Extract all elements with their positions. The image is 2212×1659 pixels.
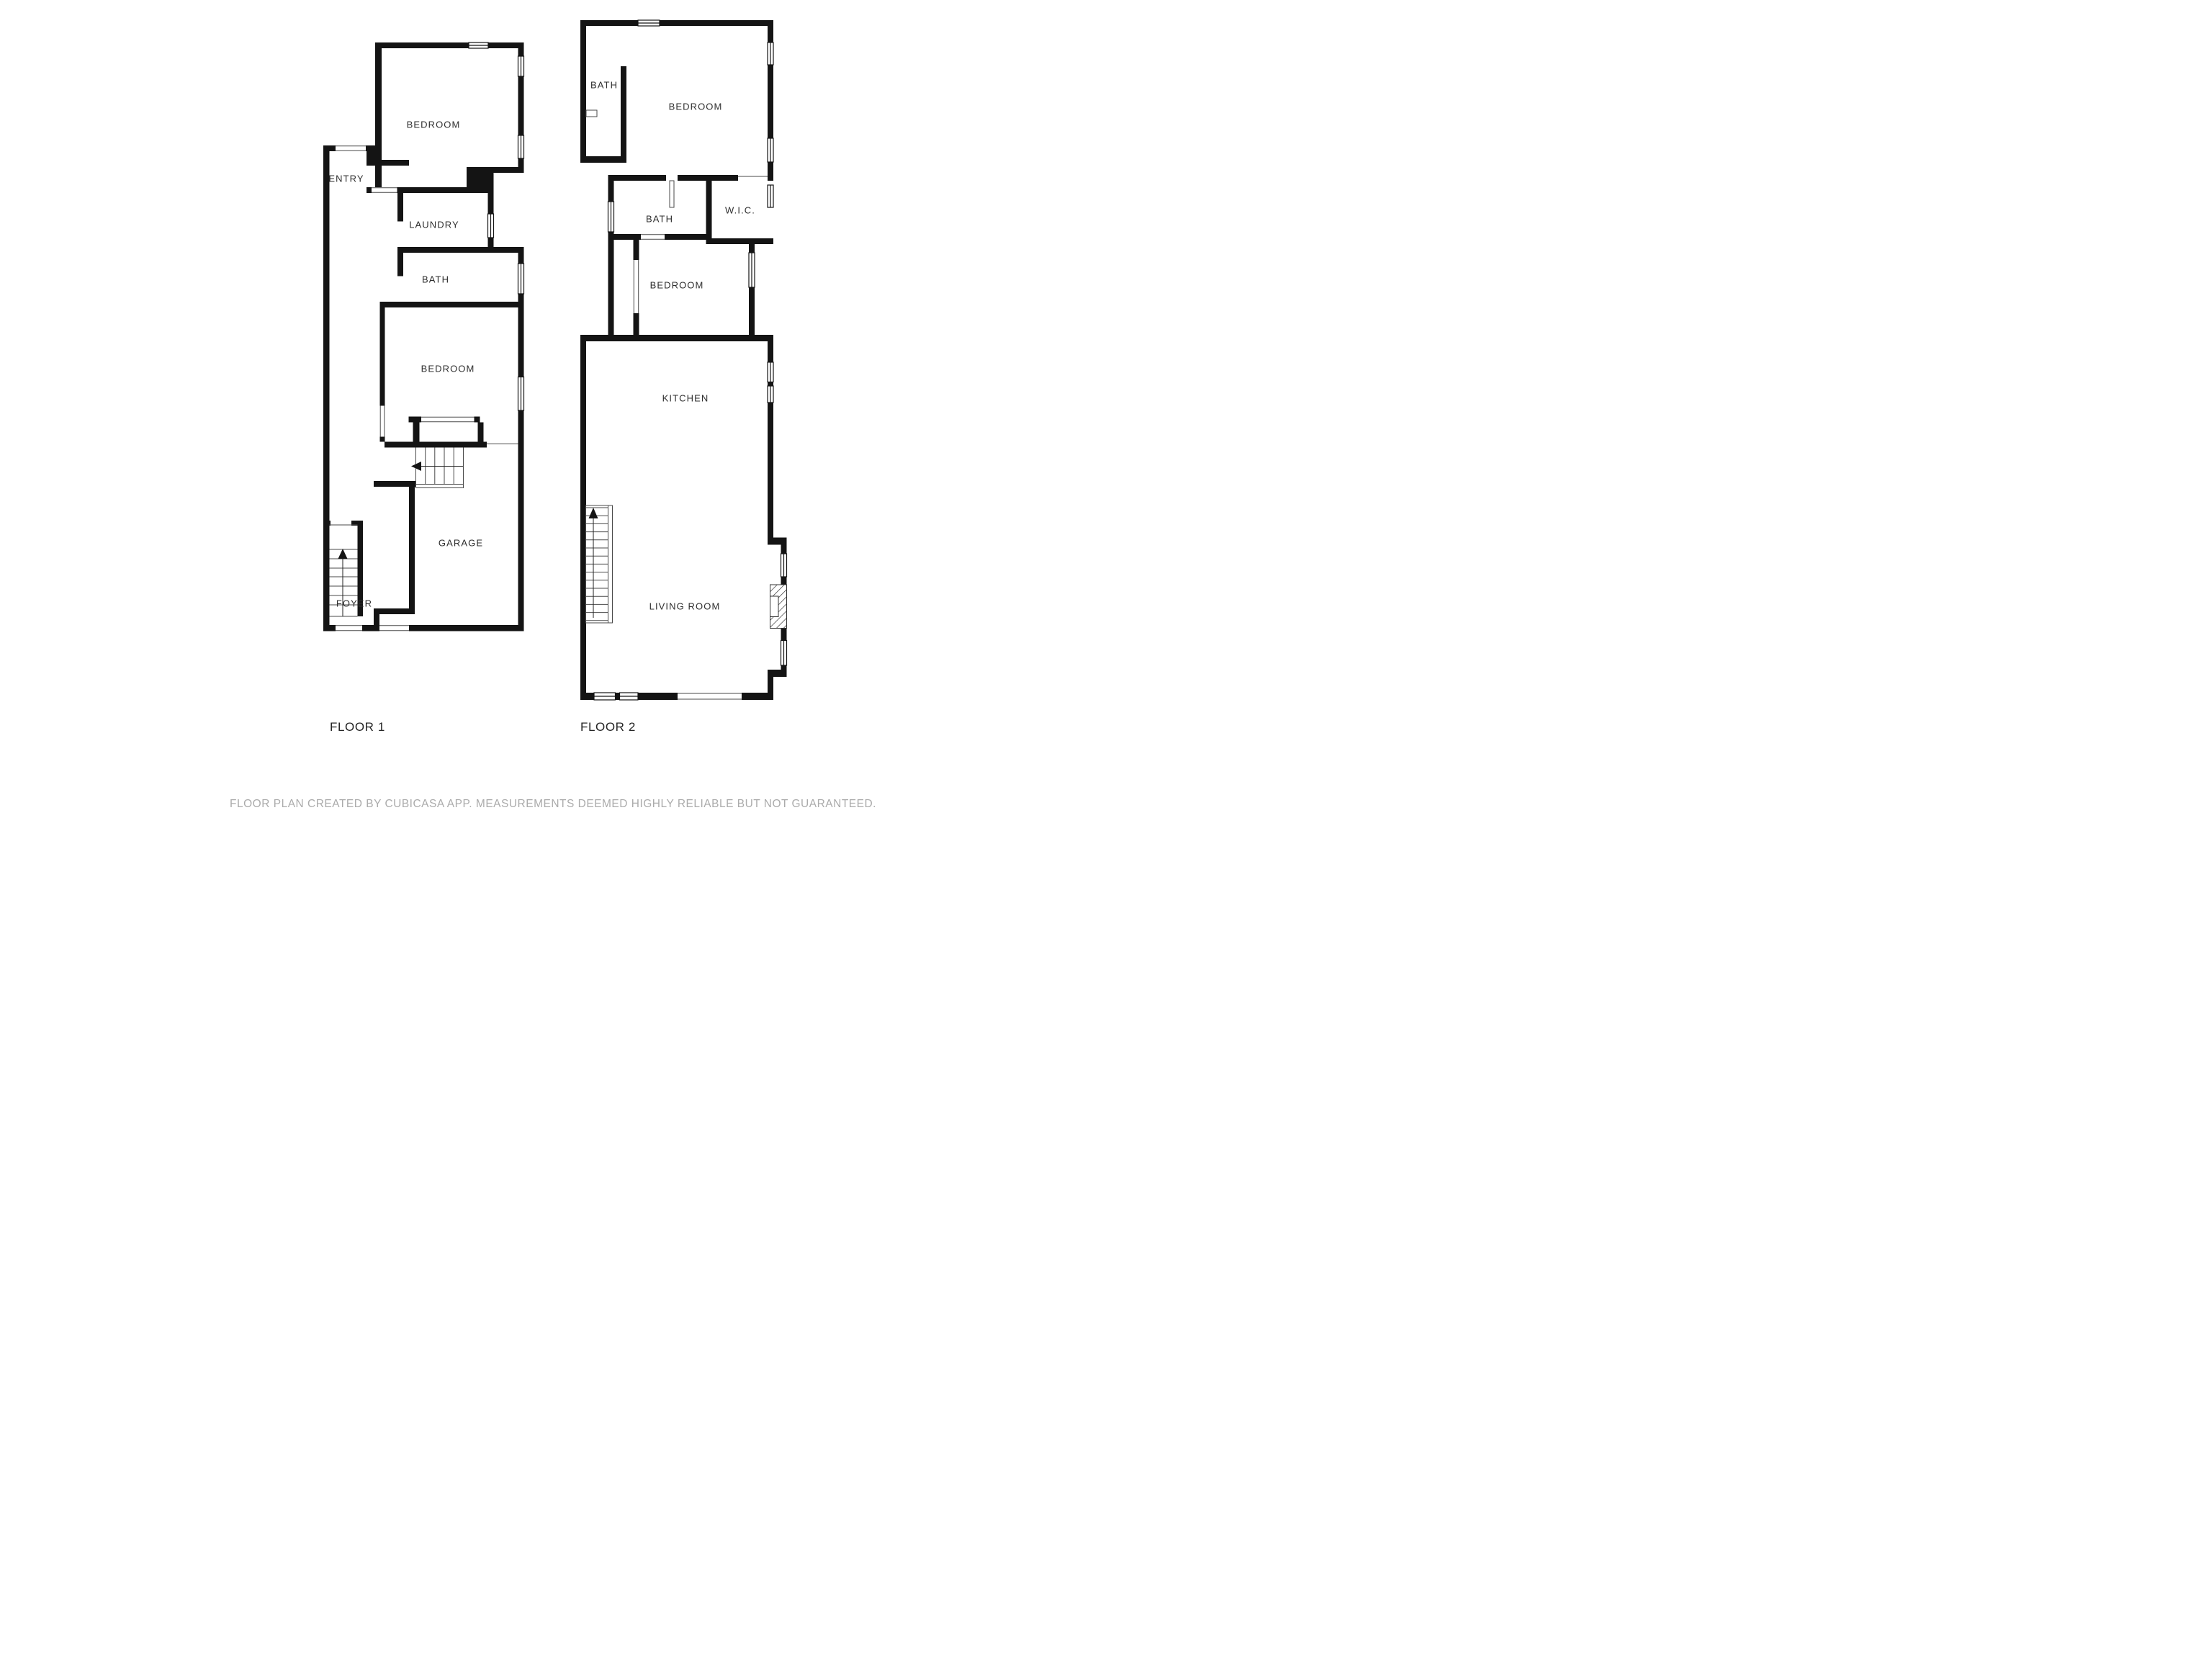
door-icon xyxy=(372,187,397,193)
window-icon xyxy=(768,362,773,382)
room-label: LIVING ROOM xyxy=(649,601,721,612)
window-icon xyxy=(518,56,524,76)
window-icon xyxy=(594,693,616,700)
room-label: ENTRY xyxy=(328,174,364,184)
room-label: BEDROOM xyxy=(669,102,723,112)
room-label: BEDROOM xyxy=(421,364,475,374)
door-icon xyxy=(336,625,362,631)
room-label: LAUNDRY xyxy=(409,220,459,230)
floor2-plan xyxy=(580,20,787,700)
stair-arrow-icon xyxy=(411,462,463,471)
floor-plan-canvas: BEDROOMENTRYLAUNDRYBATHBEDROOMGARAGEFOYE… xyxy=(0,0,1106,829)
window-icon xyxy=(620,693,639,700)
floor1-stairs-upper xyxy=(411,448,464,488)
window-icon xyxy=(488,214,494,238)
room-label: GARAGE xyxy=(439,538,483,549)
window-icon xyxy=(518,264,524,294)
room-label: FOYER xyxy=(336,598,372,609)
room-label: BATH xyxy=(590,80,618,91)
room-label: BATH xyxy=(646,214,673,225)
window-icon xyxy=(781,641,787,666)
room-label: BEDROOM xyxy=(407,120,461,130)
door-icon xyxy=(666,175,678,181)
window-icon xyxy=(518,377,524,411)
window-icon xyxy=(768,138,773,162)
door-leaf-icon xyxy=(670,181,674,207)
window-icon xyxy=(518,135,524,158)
window-icon xyxy=(781,554,787,577)
sink-icon xyxy=(586,110,597,117)
floor1-windows xyxy=(469,42,524,410)
room-label: BEDROOM xyxy=(650,280,704,291)
door-icon xyxy=(380,406,385,437)
door-icon xyxy=(641,234,665,240)
floor2-walls xyxy=(580,20,787,700)
floor1-walls xyxy=(323,42,524,631)
floor2-stairs xyxy=(586,505,613,623)
window-icon xyxy=(768,42,773,65)
door-icon xyxy=(336,145,366,151)
floor-plan-drawing xyxy=(0,0,1106,829)
room-label: BATH xyxy=(422,274,449,285)
window-icon xyxy=(749,253,755,287)
door-icon xyxy=(379,625,409,631)
window-icon xyxy=(768,386,773,403)
door-icon xyxy=(678,693,742,700)
disclaimer: FLOOR PLAN CREATED BY CUBICASA APP. MEAS… xyxy=(0,798,1106,811)
window-icon xyxy=(768,185,773,207)
door-icon xyxy=(634,260,639,313)
door-icon xyxy=(421,417,475,423)
window-icon xyxy=(608,202,614,232)
floor1-caption: FLOOR 1 xyxy=(330,720,385,734)
stair-arrow-icon xyxy=(589,508,598,618)
floor1-plan xyxy=(323,42,524,631)
window-icon xyxy=(469,42,488,48)
fireplace-icon xyxy=(770,585,787,629)
room-label: W.I.C. xyxy=(725,205,755,216)
room-label: KITCHEN xyxy=(662,393,709,404)
window-icon xyxy=(638,20,660,26)
floor2-caption: FLOOR 2 xyxy=(580,720,636,734)
